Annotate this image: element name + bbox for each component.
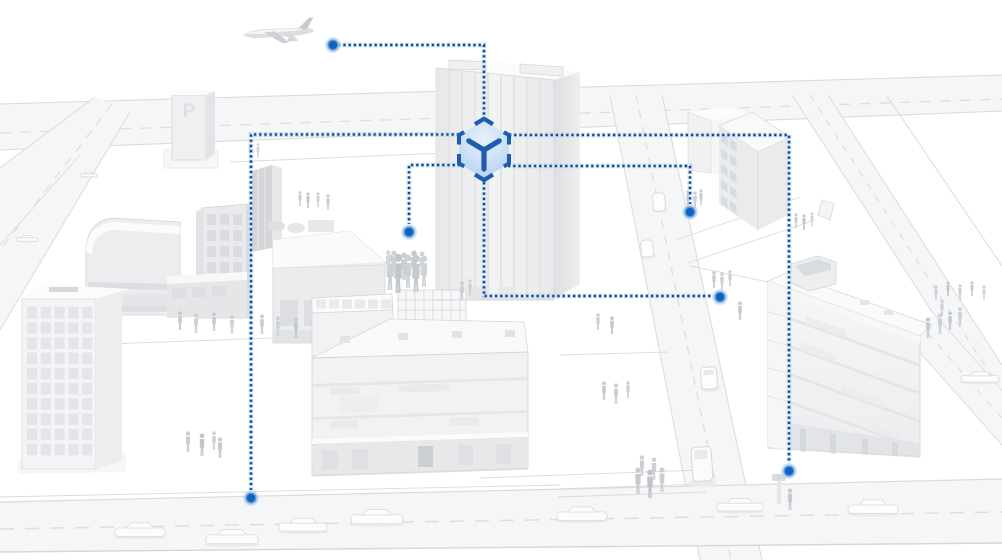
svg-text:P: P — [183, 101, 196, 122]
